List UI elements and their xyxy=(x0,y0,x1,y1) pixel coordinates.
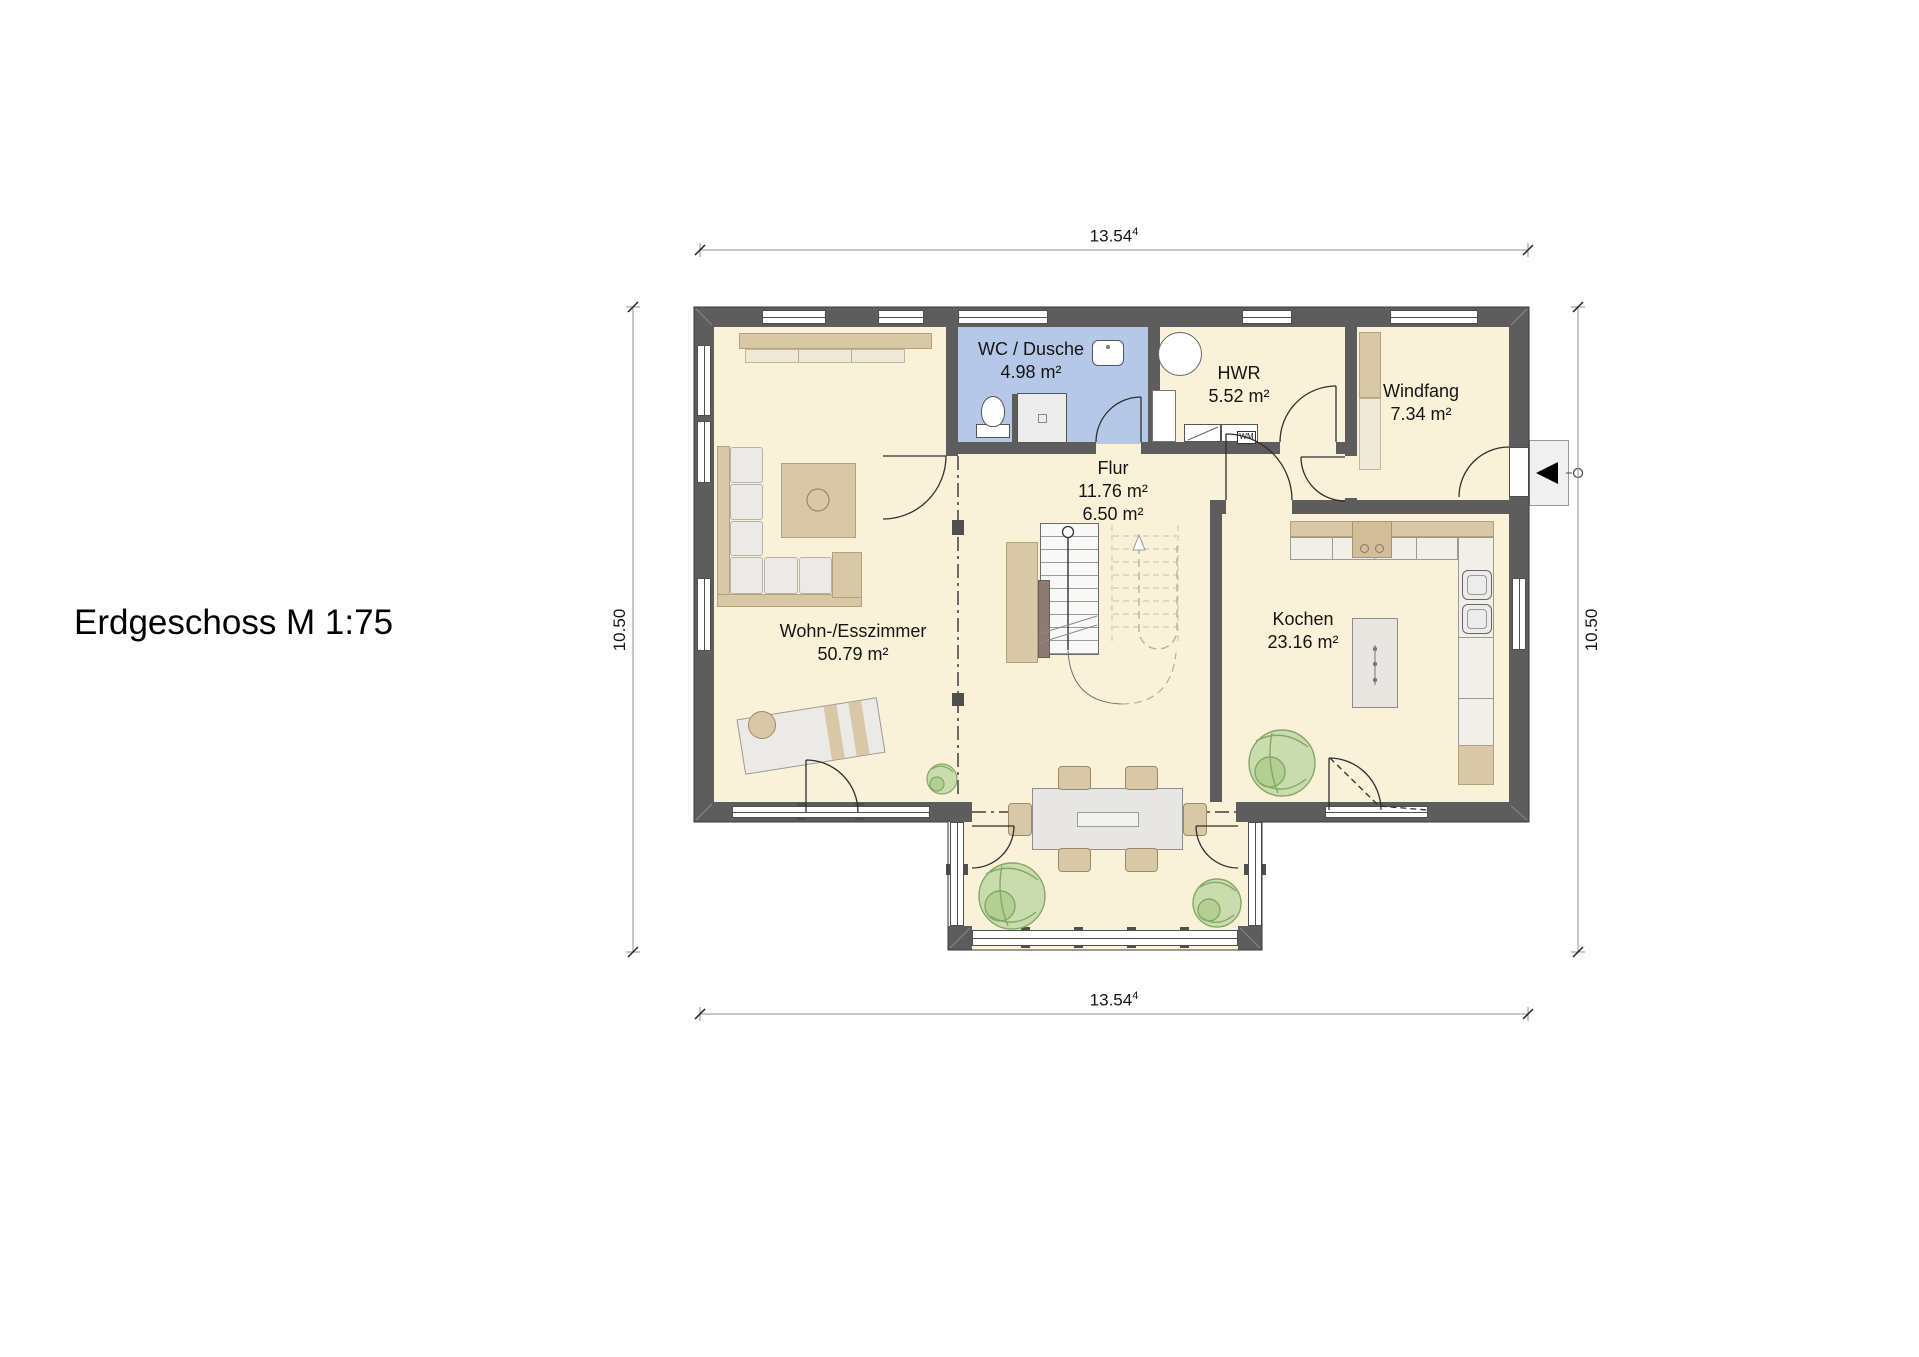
sofa-cushion xyxy=(730,447,763,483)
table-runner xyxy=(1077,812,1139,827)
window-bay-left xyxy=(950,822,964,926)
dining-chair xyxy=(1008,803,1032,836)
room-name: WC / Dusche xyxy=(978,338,1084,361)
kitchen-counter-south-end xyxy=(1458,745,1494,785)
room-name: Flur xyxy=(1078,457,1148,480)
washing-machine-label-text: WM xyxy=(1239,432,1253,441)
burner xyxy=(1375,544,1384,553)
hwr-cabinet xyxy=(1152,390,1176,442)
kitchen-sink-1 xyxy=(1462,570,1492,600)
room-name: Kochen xyxy=(1267,608,1338,631)
kitchen-sink-2 xyxy=(1462,604,1492,634)
kitchen-terrace-door xyxy=(1325,806,1428,818)
front-door-leaf xyxy=(1509,447,1529,497)
desk-mat xyxy=(823,705,844,760)
window-left-1 xyxy=(697,345,711,416)
washing-machine-label: WM xyxy=(1237,431,1256,444)
faucet-dot xyxy=(1106,345,1110,349)
room-label-windfang: Windfang 7.34 m² xyxy=(1383,380,1459,426)
room-area: 7.34 m² xyxy=(1383,403,1459,426)
room-label-kitchen: Kochen 23.16 m² xyxy=(1267,608,1338,654)
wardrobe-upper xyxy=(1359,332,1381,398)
sofa-cushion xyxy=(799,557,832,594)
media-wall xyxy=(1006,542,1038,663)
dining-chair xyxy=(1058,848,1091,872)
desk-mat xyxy=(848,701,869,756)
washing-machine xyxy=(1184,424,1221,442)
window-left-2 xyxy=(697,421,711,483)
room-name: Wohn-/Esszimmer xyxy=(780,620,927,643)
dining-chair xyxy=(1125,848,1158,872)
wardrobe-lower xyxy=(1359,398,1381,470)
fireplace xyxy=(1038,580,1050,658)
burner xyxy=(1360,544,1369,553)
water-tank xyxy=(1158,332,1202,376)
wall-bay-corner-left xyxy=(948,926,972,950)
toilet-bowl xyxy=(981,396,1005,427)
page-title: Erdgeschoss M 1:75 xyxy=(74,603,393,643)
window-bay-right xyxy=(1248,822,1262,926)
sideboard-front xyxy=(745,349,905,363)
room-area: 4.98 m² xyxy=(978,361,1084,384)
sofa-cushion-corner xyxy=(730,557,763,594)
wall-bay-corner-right xyxy=(1238,926,1262,950)
wall-kitchen-west xyxy=(1210,514,1222,802)
dimension-bottom: 13.544 xyxy=(1090,990,1139,1011)
partition-post-lower xyxy=(952,693,964,706)
dimension-left: 10.50 xyxy=(610,609,630,652)
room-name: HWR xyxy=(1208,362,1269,385)
shower-drain xyxy=(1038,414,1047,423)
shower xyxy=(1017,393,1067,443)
sofa-cushion xyxy=(730,484,763,520)
floor-plan-page: Erdgeschoss M 1:75 xyxy=(0,0,1919,1357)
room-label-hwr: HWR 5.52 m² xyxy=(1208,362,1269,408)
coffee-table xyxy=(781,463,856,538)
kitchen-counter-north xyxy=(1290,521,1494,537)
sofa-frame-left xyxy=(717,446,730,606)
wall-kitchen-north-right xyxy=(1292,500,1509,514)
dining-chair xyxy=(1125,766,1158,790)
room-area: 50.79 m² xyxy=(780,643,927,666)
dimension-sup: 4 xyxy=(1132,226,1138,238)
window-bottom-living xyxy=(732,806,930,818)
dimension-top: 13.544 xyxy=(1090,226,1139,247)
window-bay-bottom xyxy=(972,930,1238,946)
dining-chair xyxy=(1058,766,1091,790)
sofa-cushion xyxy=(764,557,798,594)
window-top-living-2 xyxy=(878,310,924,324)
room-area: 6.50 m² xyxy=(1078,503,1148,526)
window-left-3 xyxy=(697,578,711,651)
sofa-cushion xyxy=(730,521,763,556)
window-top-hwr xyxy=(1242,310,1292,324)
wall-hwr-south-left xyxy=(1141,442,1280,454)
dimension-value: 13.54 xyxy=(1090,227,1133,246)
room-area: 5.52 m² xyxy=(1208,385,1269,408)
wall-wc-south xyxy=(958,442,1096,454)
dimension-right: 10.50 xyxy=(1582,609,1602,652)
kitchen-island xyxy=(1352,618,1398,708)
sofa-chaise xyxy=(832,552,862,598)
entry-stoop xyxy=(1529,440,1569,506)
wall-hwr-windfang xyxy=(1345,327,1357,456)
cooktop xyxy=(1352,521,1392,558)
sideboard-top xyxy=(739,333,932,349)
room-label-flur: Flur 11.76 m² 6.50 m² xyxy=(1078,457,1148,526)
partition-post-upper xyxy=(952,520,964,535)
dining-chair xyxy=(1183,803,1207,836)
window-top-wc xyxy=(958,310,1048,324)
wall-kitchen-north-left xyxy=(1210,500,1226,514)
wall-wc-west xyxy=(946,327,958,456)
wall-hwr-south-right xyxy=(1336,442,1357,454)
room-area: 11.76 m² xyxy=(1078,480,1148,503)
wall-exterior-right xyxy=(1509,327,1529,822)
window-top-windfang xyxy=(1390,310,1478,324)
desk-chair xyxy=(748,711,776,739)
window-top-living-1 xyxy=(762,310,826,324)
window-right-kitchen xyxy=(1512,578,1526,650)
dimension-value: 13.54 xyxy=(1090,991,1133,1010)
room-name: Windfang xyxy=(1383,380,1459,403)
room-area: 23.16 m² xyxy=(1267,631,1338,654)
room-label-wc: WC / Dusche 4.98 m² xyxy=(978,338,1084,384)
washbasin xyxy=(1092,340,1124,366)
room-label-living: Wohn-/Esszimmer 50.79 m² xyxy=(780,620,927,666)
dimension-sup: 4 xyxy=(1132,990,1138,1002)
